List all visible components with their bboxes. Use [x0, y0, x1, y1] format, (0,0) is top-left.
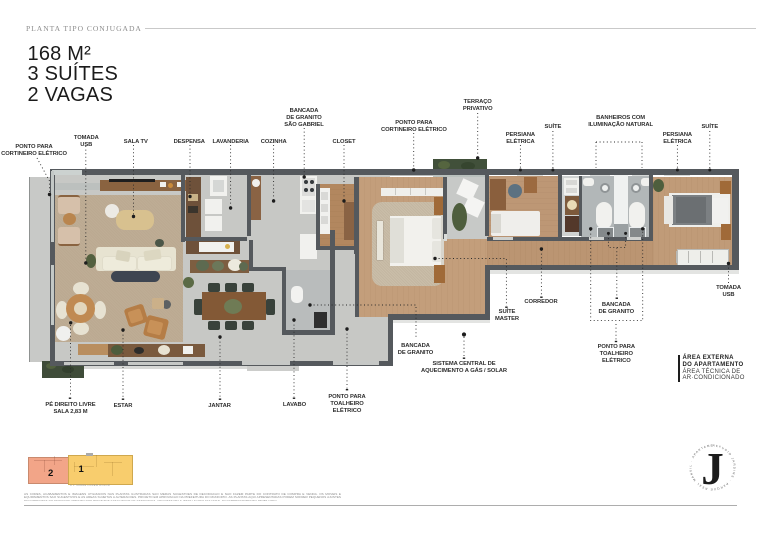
svg-text:J: J — [701, 444, 724, 494]
